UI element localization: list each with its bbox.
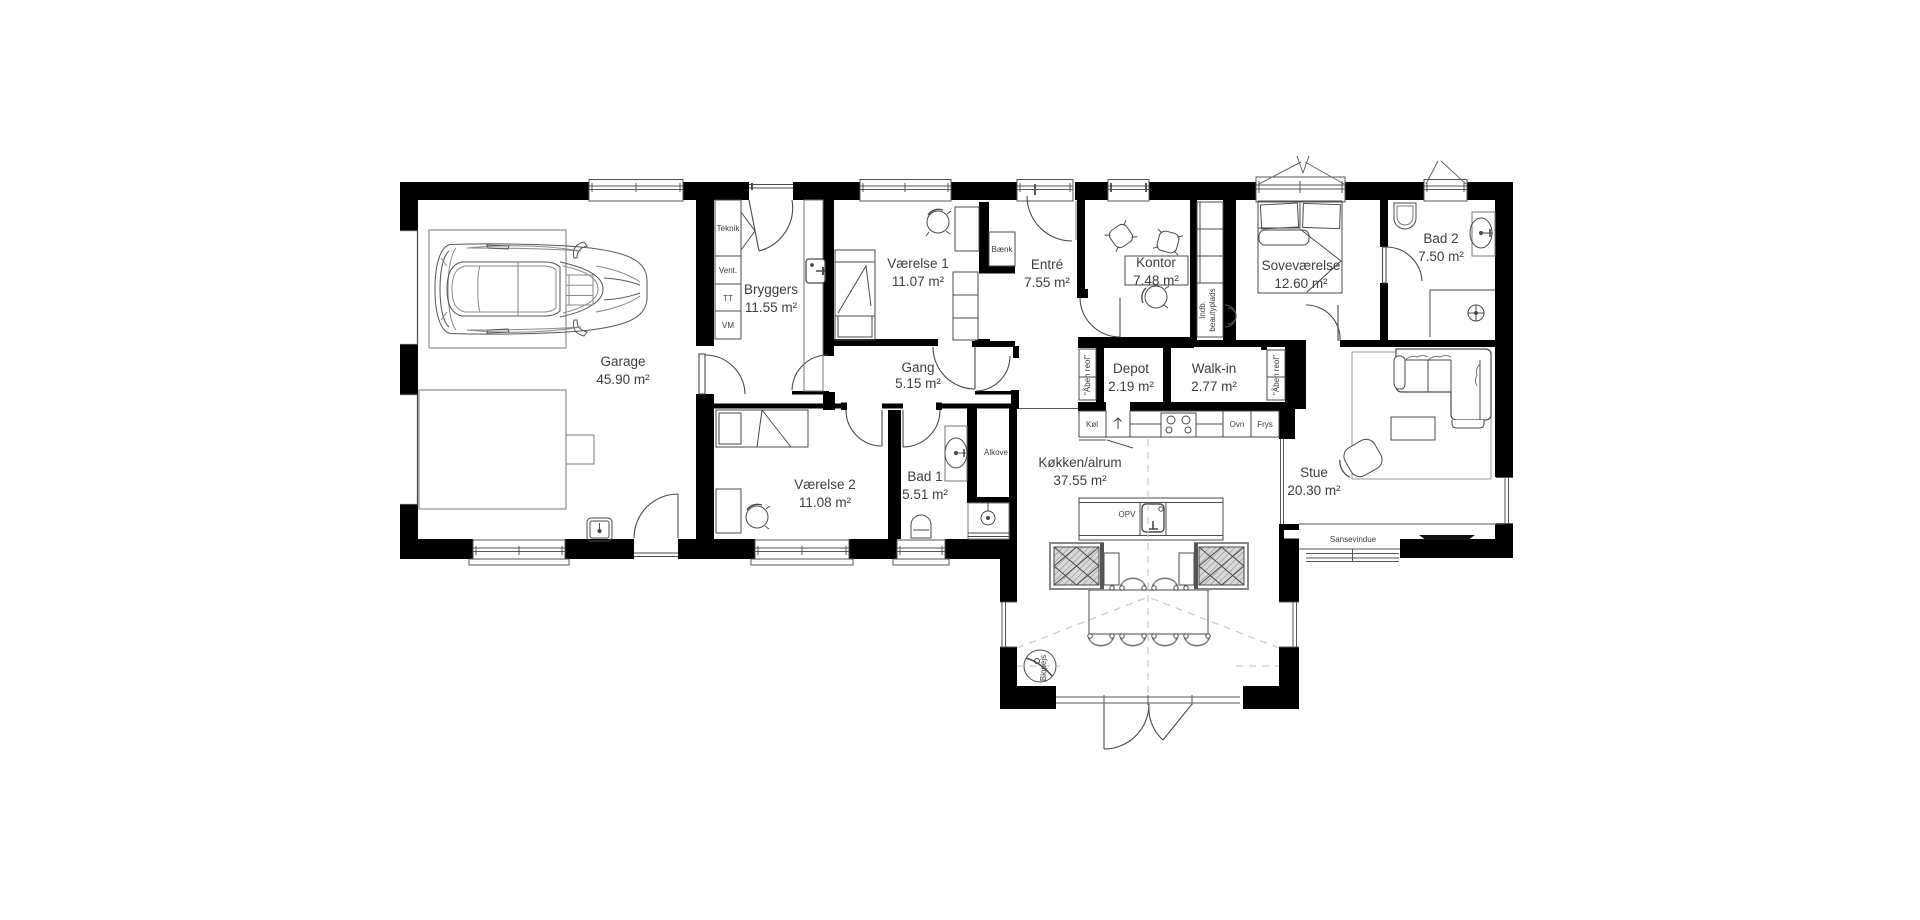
svg-text:37.55 m²: 37.55 m² xyxy=(1053,473,1107,488)
svg-text:20.30 m²: 20.30 m² xyxy=(1287,483,1341,498)
svg-text:Soveværelse: Soveværelse xyxy=(1262,258,1341,273)
svg-text:Værelse 2: Værelse 2 xyxy=(794,477,856,492)
svg-text:"Åbeh reol": "Åbeh reol" xyxy=(1083,355,1092,395)
svg-text:OPV: OPV xyxy=(1119,510,1137,519)
svg-text:2.77 m²: 2.77 m² xyxy=(1191,379,1237,394)
svg-text:12.60 m²: 12.60 m² xyxy=(1274,276,1328,291)
svg-text:Vent.: Vent. xyxy=(719,266,737,275)
svg-text:Biopejs: Biopejs xyxy=(1039,655,1048,681)
svg-text:Bænk: Bænk xyxy=(992,245,1014,254)
svg-text:VM: VM xyxy=(722,321,734,330)
svg-text:Teknik: Teknik xyxy=(717,224,741,233)
svg-text:Kontor: Kontor xyxy=(1136,255,1176,270)
svg-text:Stue: Stue xyxy=(1300,465,1328,480)
svg-text:7.55 m²: 7.55 m² xyxy=(1024,275,1070,290)
svg-text:Bryggers: Bryggers xyxy=(744,282,798,297)
svg-text:Walk-in: Walk-in xyxy=(1192,361,1237,376)
svg-text:45.90 m²: 45.90 m² xyxy=(596,372,650,387)
svg-text:Frys: Frys xyxy=(1257,420,1273,429)
svg-text:Værelse 1: Værelse 1 xyxy=(887,256,949,271)
svg-text:beautyplads: beautyplads xyxy=(1208,288,1217,331)
svg-text:Bad 2: Bad 2 xyxy=(1423,231,1458,246)
svg-text:7.50 m²: 7.50 m² xyxy=(1418,249,1464,264)
svg-text:TT: TT xyxy=(723,294,733,303)
svg-text:5.51 m²: 5.51 m² xyxy=(902,487,948,502)
svg-text:Gang: Gang xyxy=(901,360,934,375)
svg-text:Entré: Entré xyxy=(1031,257,1063,272)
svg-text:Garage: Garage xyxy=(600,354,645,369)
svg-text:Bad 1: Bad 1 xyxy=(907,469,942,484)
svg-text:11.55 m²: 11.55 m² xyxy=(745,300,798,315)
svg-text:2.19 m²: 2.19 m² xyxy=(1108,379,1154,394)
svg-text:7.48 m²: 7.48 m² xyxy=(1133,273,1179,288)
svg-text:11.08 m²: 11.08 m² xyxy=(799,495,852,510)
svg-text:"Åbeh reol": "Åbeh reol" xyxy=(1272,355,1281,395)
svg-text:Sansevindue: Sansevindue xyxy=(1330,535,1377,544)
svg-text:Depot: Depot xyxy=(1113,361,1149,376)
svg-text:5.15 m²: 5.15 m² xyxy=(895,376,941,391)
svg-text:Indb.: Indb. xyxy=(1198,301,1207,319)
svg-text:Køkken/alrum: Køkken/alrum xyxy=(1038,455,1121,470)
svg-text:Alkove: Alkove xyxy=(984,448,1009,457)
svg-text:Køl: Køl xyxy=(1086,420,1098,429)
svg-text:Ovn: Ovn xyxy=(1230,420,1245,429)
svg-text:11.07 m²: 11.07 m² xyxy=(892,274,945,289)
